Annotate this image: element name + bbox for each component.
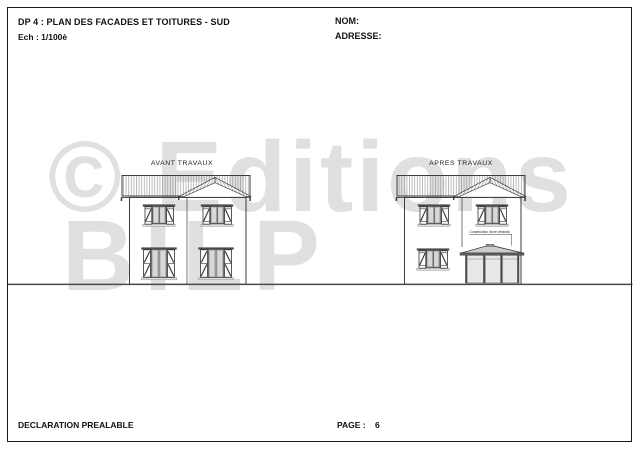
window-upper-left xyxy=(418,204,450,226)
page-number: 6 xyxy=(375,420,380,430)
window-upper-right xyxy=(476,204,508,226)
veranda-hip-roof xyxy=(461,246,524,253)
veranda xyxy=(460,244,524,283)
address-label: ADRESSE: xyxy=(335,31,382,41)
window-upper-left xyxy=(143,204,175,226)
french-door-left xyxy=(141,247,176,279)
scale-note: Ech : 1/100è xyxy=(18,32,67,42)
before-works-label: AVANT TRAVAUX xyxy=(118,160,246,167)
veranda-annotation: Construction d'une véranda xyxy=(470,230,513,245)
building-after-works: Construction d'une véranda xyxy=(396,176,527,285)
document-type: DECLARATION PREALABLE xyxy=(18,420,134,430)
after-works-label: APRES TRAVAUX xyxy=(396,160,526,167)
french-door-right xyxy=(198,247,233,279)
veranda-annotation-text: Construction d'une véranda xyxy=(470,230,510,234)
document-title: DP 4 : PLAN DES FACADES ET TOITURES - SU… xyxy=(18,17,230,27)
name-label: NOM: xyxy=(335,16,359,26)
page-label: PAGE : xyxy=(337,420,366,430)
veranda-eave-band xyxy=(460,253,524,255)
window-upper-right xyxy=(201,204,233,226)
document-page: © Editions BILP DP 4 : PLAN DES FACADES … xyxy=(0,0,640,453)
building-before-works xyxy=(121,176,252,285)
elevation-drawing: Construction d'une véranda xyxy=(0,0,640,453)
window-ground-left xyxy=(417,248,449,270)
veranda-glazing xyxy=(466,255,520,283)
